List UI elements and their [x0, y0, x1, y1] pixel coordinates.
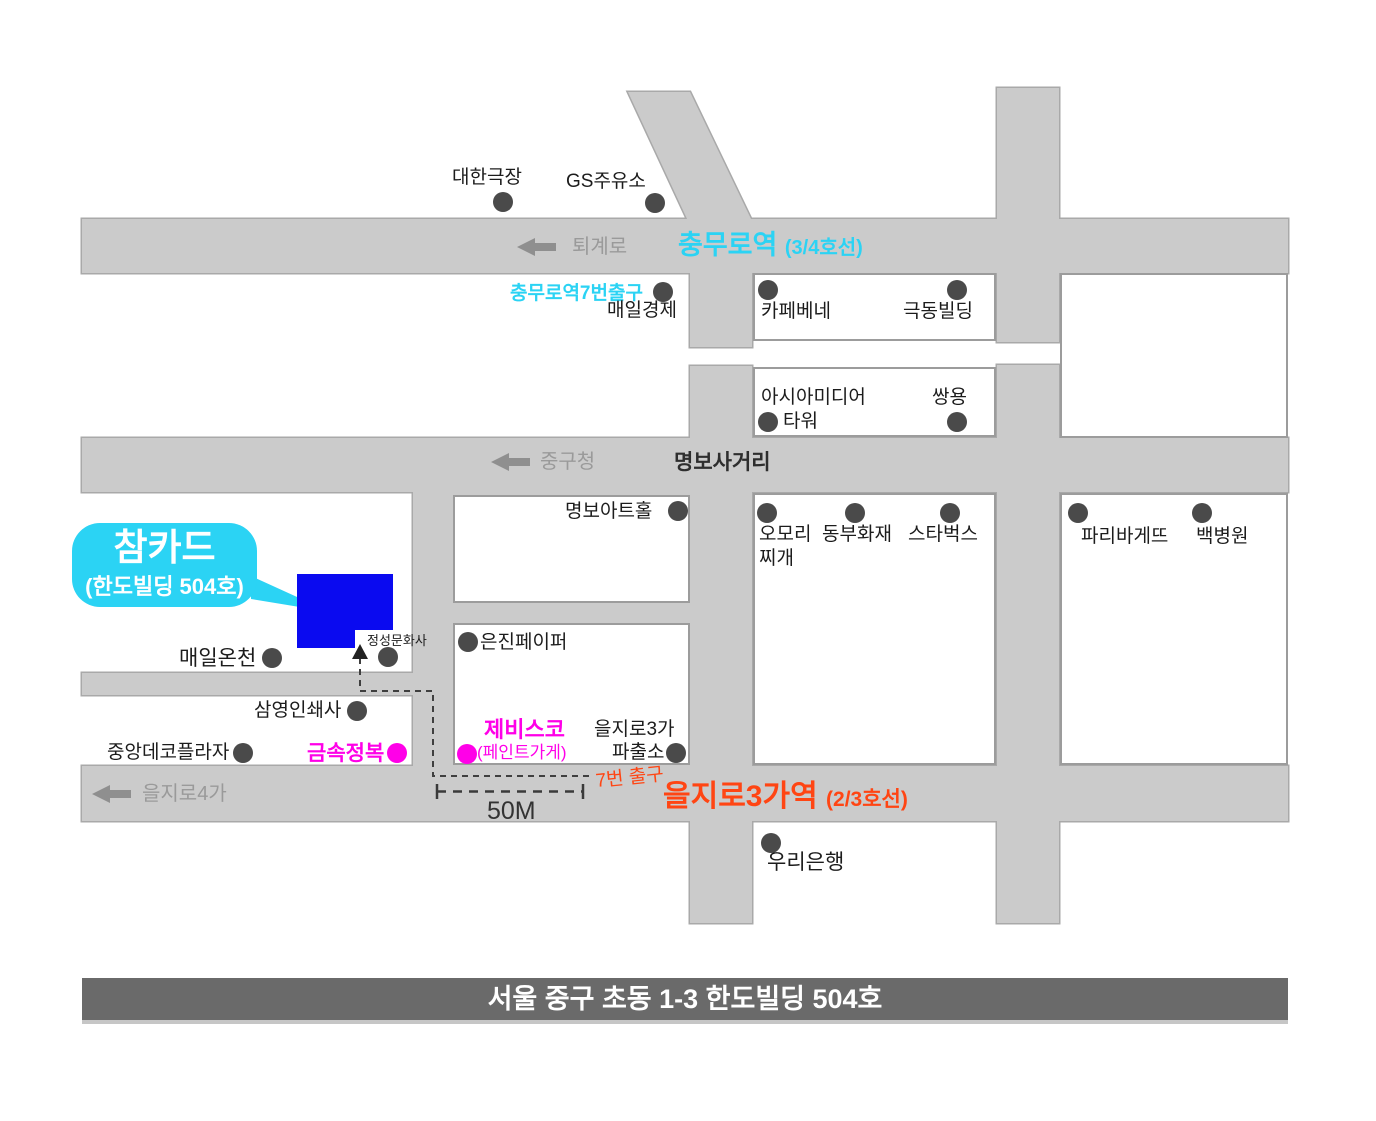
label-baek-hospital: 백병원: [1196, 526, 1248, 548]
label-eunjin-paper: 은진페이퍼: [480, 632, 567, 654]
dot-asia-media-tower: [758, 412, 778, 432]
dot-caffebene: [758, 280, 778, 300]
dot-paris-baguette: [1068, 503, 1088, 523]
label-junggucheong: 중구청: [540, 451, 595, 474]
block-east-empty: [1060, 273, 1288, 438]
label-samyeong-printing: 삼영인쇄사: [254, 700, 341, 722]
label-euljiro3ga-police-line1: 을지로3가: [594, 719, 675, 741]
arrow-shaft: [109, 790, 131, 798]
arrow-head-icon: [491, 453, 509, 471]
dot-geukdong-building: [947, 280, 967, 300]
label-maeil-oncheon: 매일온천: [179, 647, 256, 671]
arrow-shaft: [534, 243, 556, 251]
label-jebisco: 제비스코: [484, 717, 565, 742]
label-distance-50m: 50M: [487, 797, 536, 826]
dot-jebisco: [457, 744, 477, 764]
dot-samyeong-printing: [347, 701, 367, 721]
label-daehan-theater: 대한극장: [452, 167, 522, 189]
address-bar: 서울 중구 초동 1-3 한도빌딩 504호: [82, 978, 1288, 1024]
callout-subtitle: (한도빌딩 504호): [85, 569, 244, 601]
dot-baek-hospital: [1192, 503, 1212, 523]
euljiro3ga-station-name: 을지로3가역: [663, 780, 818, 813]
label-gs-station: GS주유소: [566, 171, 646, 193]
callout-chamcard: 참카드 (한도빌딩 504호): [72, 523, 257, 607]
arrow-left-toegyero-icon: [517, 238, 556, 256]
dot-chungmuro-exit7: [653, 282, 673, 302]
label-ssangyong: 쌍용: [932, 387, 967, 409]
euljiro3ga-station-line: (2/3호선): [826, 788, 908, 811]
label-chungmuro-station: 충무로역 (3/4호선): [678, 230, 863, 261]
label-dongbu-insurance: 동부화재: [822, 524, 892, 546]
arrow-left-euljiro4ga-icon: [92, 785, 131, 803]
dot-geumsok-jeongbok: [387, 743, 407, 763]
label-maeil-business: 매일경제: [607, 300, 677, 322]
label-jungang-deco-plaza: 중앙데코플라자: [107, 742, 229, 764]
label-geukdong-building: 극동빌딩: [903, 301, 973, 323]
arrow-head-icon: [517, 238, 535, 256]
dot-dongbu-insurance: [845, 503, 865, 523]
dot-ssangyong: [947, 412, 967, 432]
callout-title: 참카드: [113, 529, 215, 566]
dot-starbucks: [940, 503, 960, 523]
label-asia-media-tower: 타워: [783, 411, 818, 433]
label-myeongbo-art-hall: 명보아트홀: [565, 501, 652, 523]
dot-gs-station: [645, 193, 665, 213]
label-geumsok-jeongbok: 금속정복: [307, 742, 384, 766]
label-jebisco-note: (페인트가게): [477, 743, 567, 763]
label-asia-media: 아시아미디어: [761, 387, 866, 409]
label-jeongseong-munhwasa: 정성문화사: [367, 634, 427, 649]
dot-euljiro3ga-police: [666, 743, 686, 763]
dot-jungang-deco-plaza: [233, 743, 253, 763]
chungmuro-station-name: 충무로역: [678, 230, 777, 260]
dot-jeongseong-munhwasa: [378, 647, 398, 667]
dot-maeil-oncheon: [262, 648, 282, 668]
dot-eunjin-paper: [458, 632, 478, 652]
label-myeongbo-junction: 명보사거리: [674, 451, 771, 475]
label-caffebene: 카페베네: [761, 301, 831, 323]
dot-daehan-theater: [493, 192, 513, 212]
dot-omori: [757, 503, 777, 523]
label-paris-baguette: 파리바게뜨: [1081, 526, 1168, 548]
label-euljiro3ga-police-line2: 파출소: [612, 742, 664, 764]
label-euljiro4ga: 을지로4가: [142, 783, 227, 806]
label-euljiro3ga-station: 을지로3가역 (2/3호선): [663, 780, 908, 815]
dot-myeongbo-art-hall: [668, 501, 688, 521]
arrow-head-icon: [92, 785, 110, 803]
location-map: 참카드 (한도빌딩 504호) 대한극장 GS주유소 퇴계로 충무로역 (3/4…: [0, 0, 1376, 1121]
label-omori: 오모리: [759, 524, 811, 546]
dot-woori-bank: [761, 833, 781, 853]
arrow-shaft: [508, 458, 530, 466]
chungmuro-station-line: (3/4호선): [785, 237, 863, 259]
label-toegyero: 퇴계로: [572, 236, 627, 259]
arrow-left-junggucheong-icon: [491, 453, 530, 471]
label-starbucks: 스타벅스: [908, 524, 978, 546]
label-omori-jjigae: 찌개: [759, 548, 794, 570]
label-woori-bank: 우리은행: [767, 851, 844, 875]
